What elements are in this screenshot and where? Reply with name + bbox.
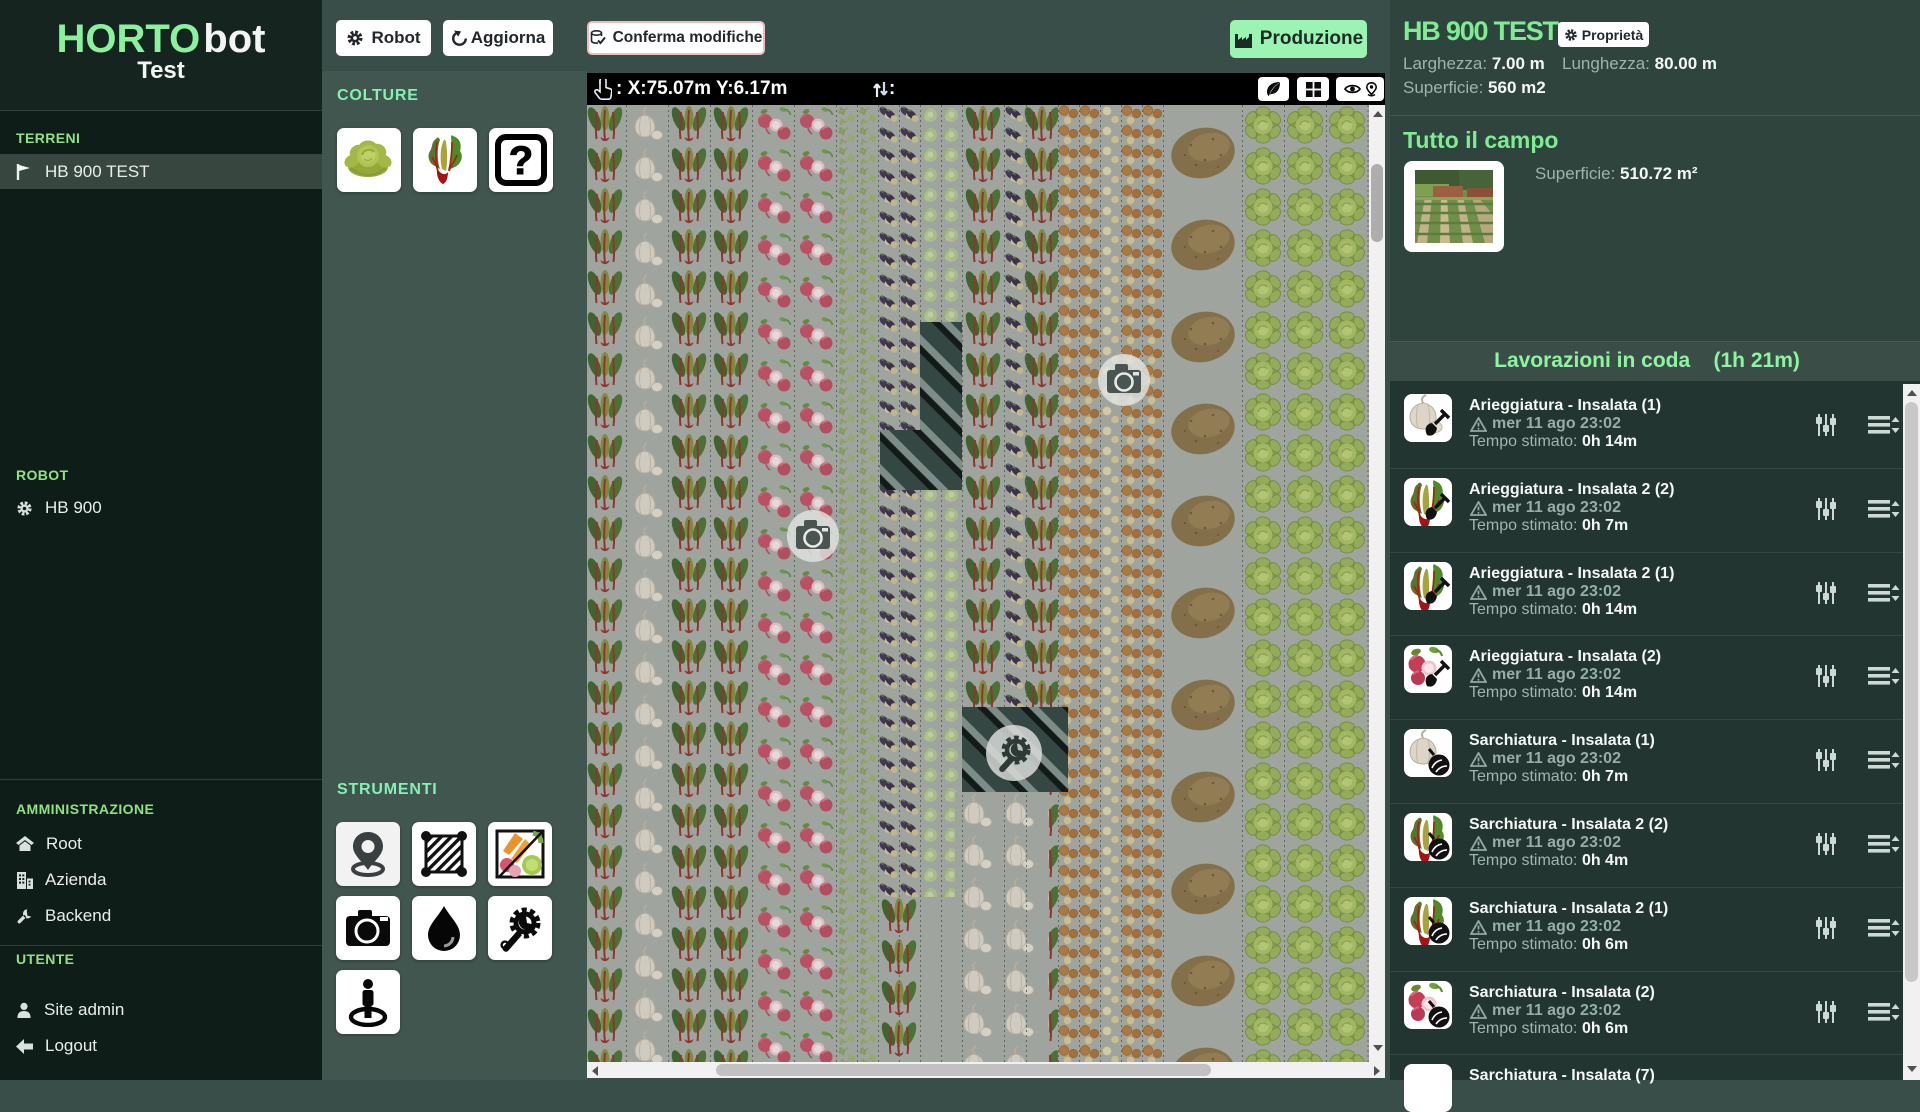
svg-text:?: ? xyxy=(509,139,533,183)
